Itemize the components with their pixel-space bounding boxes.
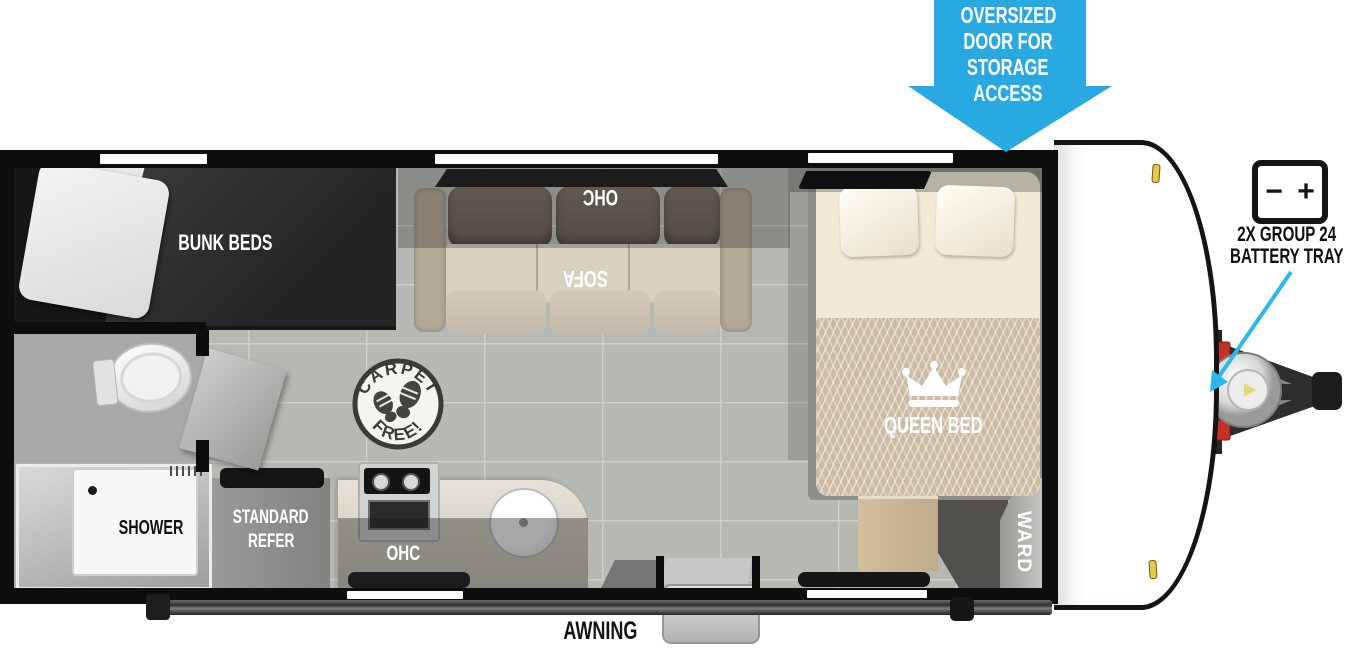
shower-pan [72,468,198,576]
carpet-free-stamp: CARPET FREE! [350,356,446,452]
hitch-truss-bottom [1208,400,1292,434]
bed-pillow-left [839,185,919,258]
wall-bath-bottom [196,440,209,472]
shower-drain [88,486,97,495]
hitch-truss-top [1208,350,1292,384]
window-bed-top [808,153,953,163]
wall-bunk-bath [14,322,206,334]
burner-left [372,473,390,491]
battery-icon: − + [1252,160,1328,224]
floorplan-canvas: BUNK BEDS SHOWER STANDARD REFER OHC [0,0,1366,649]
door-post-right [752,556,760,592]
entry-door [662,558,752,584]
window-sofa [435,154,718,164]
sofa-bolster [550,290,650,334]
wall-rear [0,150,14,604]
front-cap [1054,140,1219,610]
toilet [80,335,195,420]
sofa-overhead-cabinet [435,169,728,187]
battery-label-line1: 2X GROUP 24 [1238,224,1337,245]
battery-plus: + [1297,175,1315,209]
wall-front-interior [1042,150,1058,604]
callout-line: DOOR FOR [963,28,1052,54]
clearance-light-top [1151,164,1160,184]
window-bed-bottom [807,590,927,598]
callout-line: OVERSIZED [960,2,1056,28]
nightstand [858,496,938,571]
battery-label-line2: BATTERY TRAY [1230,246,1343,267]
awning-end-left [146,594,170,620]
under-counter-cabinet [348,572,470,588]
crown-icon [901,360,967,408]
toilet-tank [92,358,119,406]
refrigerator-top [220,468,324,488]
door-post-left [656,556,664,592]
refrigerator [212,478,330,590]
sofa-bolster [446,290,546,334]
bunk-room [14,168,396,330]
callout-line: ACCESS [973,80,1042,106]
sofa-bolster [654,290,720,334]
awning-bracket [950,597,974,621]
wall-bath-top [196,330,209,356]
battery-minus: − [1265,175,1283,209]
propane-valve [1244,383,1256,397]
callout-line: STORAGE [967,54,1049,80]
burner-right [402,473,420,491]
shower-room [14,462,212,590]
awning-bar [150,600,1052,615]
bunk-pillow [17,168,171,320]
bed-overhead-cabinet [798,171,932,189]
wardrobe-label: WARD [1006,498,1040,586]
awning-label: AWNING [540,616,660,646]
battery-tray-callout: 2X GROUP 24 BATTERY TRAY [1197,224,1366,268]
window-bunk [100,154,207,164]
bed-pillow-right [935,185,1015,258]
hitch-coupler [1312,372,1342,410]
bed-storage-bar [798,572,930,587]
storage-door-callout: OVERSIZED DOOR FOR STORAGE ACCESS [908,2,1108,106]
window-kitchen [347,591,463,599]
clearance-light-bottom [1148,560,1157,580]
propane-tank-cap [1228,370,1268,410]
battery-pointer-arrow [1210,272,1291,392]
